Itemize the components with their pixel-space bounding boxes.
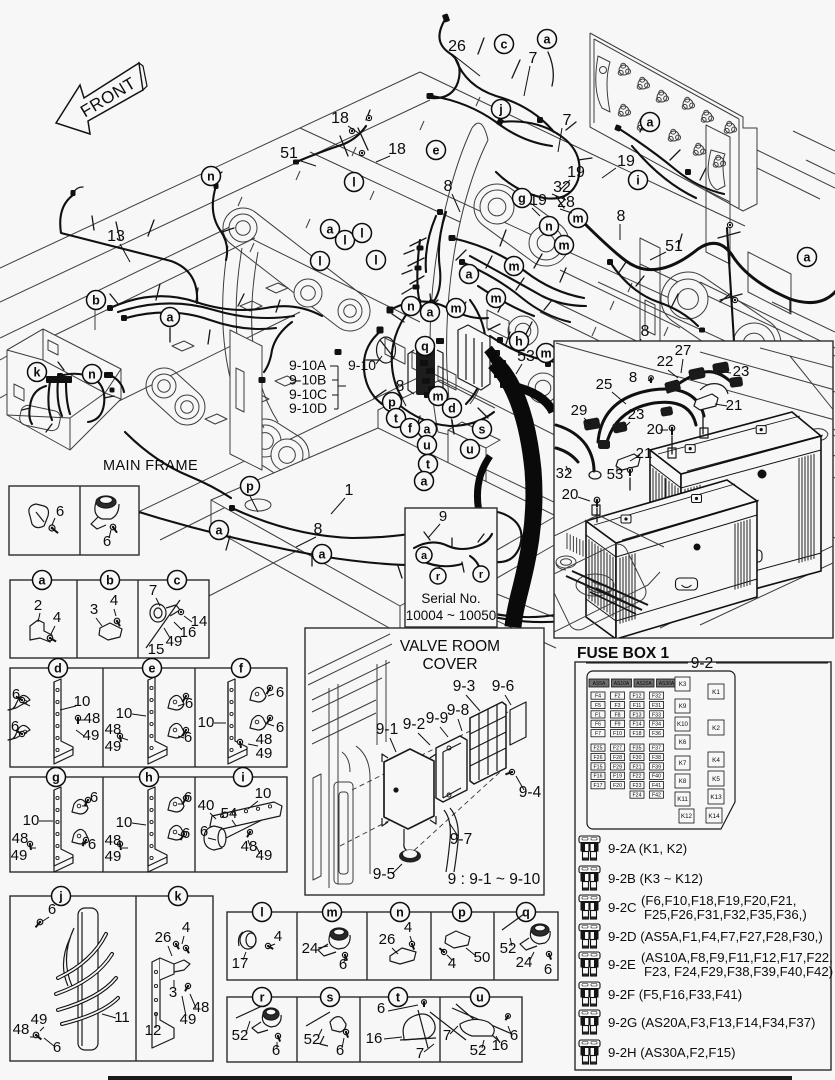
svg-text:K14: K14 — [708, 813, 720, 820]
svg-text:K13: K13 — [710, 794, 722, 801]
svg-text:6: 6 — [12, 686, 20, 703]
svg-text:26: 26 — [379, 931, 396, 948]
svg-text:F22: F22 — [633, 774, 642, 780]
svg-text:9: 9 — [439, 508, 447, 525]
svg-text:10: 10 — [198, 714, 215, 731]
svg-text:F41: F41 — [652, 783, 661, 789]
svg-text:d: d — [54, 662, 62, 676]
svg-text:13: 13 — [107, 228, 125, 245]
svg-text:10: 10 — [116, 705, 133, 722]
svg-text:52: 52 — [470, 1042, 487, 1059]
svg-text:F7: F7 — [595, 731, 601, 737]
svg-text:20: 20 — [562, 486, 579, 503]
svg-text:51: 51 — [665, 238, 683, 255]
svg-text:3: 3 — [90, 601, 98, 618]
svg-text:F15: F15 — [594, 764, 603, 770]
svg-text:49: 49 — [31, 1011, 48, 1028]
svg-text:K8: K8 — [679, 778, 687, 785]
svg-text:19: 19 — [617, 153, 635, 170]
svg-text:a: a — [167, 311, 175, 325]
svg-text:F17: F17 — [594, 783, 603, 789]
svg-text:c: c — [501, 38, 508, 52]
svg-text:6: 6 — [339, 956, 347, 973]
svg-text:F26: F26 — [594, 755, 603, 761]
svg-text:6: 6 — [184, 729, 192, 746]
svg-text:l: l — [318, 255, 321, 269]
svg-text:23: 23 — [733, 363, 750, 380]
svg-text:e: e — [433, 144, 440, 158]
svg-text:F8: F8 — [614, 712, 620, 718]
svg-text:K5: K5 — [712, 776, 720, 783]
svg-text:9-6: 9-6 — [492, 678, 514, 695]
svg-text:9-2D (AS5A,F1,F4,F7,F27,F28,F3: 9-2D (AS5A,F1,F4,F7,F27,F28,F30,) — [608, 929, 823, 944]
svg-text:F14: F14 — [633, 722, 642, 728]
svg-text:12: 12 — [145, 1022, 162, 1039]
svg-text:6: 6 — [276, 719, 284, 736]
svg-text:9-9: 9-9 — [426, 710, 448, 727]
svg-text:F35: F35 — [633, 745, 642, 751]
svg-text:m: m — [572, 212, 583, 226]
svg-text:6: 6 — [510, 1027, 518, 1044]
svg-text:9-2: 9-2 — [691, 655, 713, 672]
svg-text:6: 6 — [11, 718, 19, 735]
svg-text:e: e — [149, 662, 156, 676]
svg-text:F29: F29 — [613, 764, 622, 770]
svg-text:AS20A: AS20A — [636, 681, 652, 687]
svg-text:27: 27 — [675, 342, 692, 359]
svg-text:VALVE ROOM: VALVE ROOM — [400, 638, 500, 655]
svg-text:54: 54 — [221, 805, 238, 822]
svg-text:8: 8 — [444, 178, 453, 195]
svg-text:48: 48 — [105, 832, 122, 849]
svg-text:7: 7 — [563, 112, 572, 129]
svg-text:l: l — [360, 227, 363, 241]
svg-text:g: g — [518, 192, 526, 206]
svg-text:F3: F3 — [614, 703, 620, 709]
svg-text:48: 48 — [13, 1021, 30, 1038]
svg-text:7: 7 — [443, 1027, 451, 1044]
svg-text:d: d — [448, 402, 456, 416]
svg-text:F36: F36 — [652, 731, 661, 737]
svg-text:F33: F33 — [652, 712, 661, 718]
svg-text:11: 11 — [114, 1009, 130, 1026]
svg-text:(F6,F10,F18,F19,F20,F21,: (F6,F10,F18,F19,F20,F21, — [641, 893, 796, 908]
svg-text:q: q — [522, 906, 530, 920]
svg-text:s: s — [479, 423, 486, 437]
svg-text:50: 50 — [474, 949, 491, 966]
svg-text:8: 8 — [396, 378, 405, 395]
svg-text:F19: F19 — [613, 774, 622, 780]
svg-text:53: 53 — [607, 466, 624, 483]
svg-text:48: 48 — [84, 710, 101, 727]
svg-text:F37: F37 — [652, 745, 661, 751]
svg-text:9-3: 9-3 — [453, 678, 475, 695]
svg-text:n: n — [207, 170, 215, 184]
svg-text:3: 3 — [169, 984, 177, 1001]
svg-text:n: n — [88, 368, 96, 382]
svg-text:m: m — [490, 292, 501, 306]
svg-text:6: 6 — [184, 789, 192, 806]
svg-text:i: i — [636, 174, 639, 188]
svg-text:51: 51 — [280, 145, 298, 162]
svg-text:9-10: 9-10 — [348, 357, 376, 373]
svg-text:9-2: 9-2 — [403, 716, 425, 733]
svg-text:9-2C: 9-2C — [608, 900, 637, 915]
svg-text:a: a — [319, 548, 327, 562]
svg-text:6: 6 — [88, 836, 96, 853]
svg-text:6: 6 — [272, 1042, 280, 1059]
svg-text:m: m — [450, 302, 461, 316]
svg-text:F12: F12 — [633, 693, 642, 699]
svg-text:49: 49 — [83, 727, 100, 744]
svg-text:6: 6 — [276, 684, 284, 701]
svg-text:s: s — [327, 991, 334, 1005]
svg-text:p: p — [246, 480, 254, 494]
svg-text:52: 52 — [304, 1031, 321, 1048]
svg-text:r: r — [260, 991, 265, 1005]
svg-text:F34: F34 — [652, 722, 661, 728]
svg-text:6: 6 — [90, 789, 98, 806]
svg-text:6: 6 — [53, 1039, 61, 1056]
svg-text:h: h — [145, 771, 153, 785]
svg-text:Serial No.: Serial No. — [421, 591, 480, 606]
svg-text:48: 48 — [12, 830, 29, 847]
svg-text:8: 8 — [629, 369, 637, 386]
svg-text:a: a — [216, 524, 224, 538]
svg-text:1: 1 — [345, 482, 354, 499]
svg-text:FUSE BOX 1: FUSE BOX 1 — [577, 645, 670, 662]
svg-text:b: b — [106, 574, 114, 588]
svg-text:4: 4 — [182, 919, 190, 936]
svg-text:6: 6 — [182, 825, 190, 842]
svg-text:K10: K10 — [677, 721, 689, 728]
svg-text:h: h — [515, 335, 523, 349]
svg-text:7: 7 — [149, 582, 157, 599]
svg-text:6: 6 — [544, 961, 552, 978]
svg-text:p: p — [388, 396, 396, 410]
svg-text:r: r — [436, 571, 441, 583]
svg-text:9-2A (K1, K2): 9-2A (K1, K2) — [608, 841, 687, 856]
svg-text:K1: K1 — [712, 689, 720, 696]
svg-text:49: 49 — [105, 848, 122, 865]
svg-text:9-2H (AS30A,F2,F15): 9-2H (AS30A,F2,F15) — [608, 1045, 736, 1060]
svg-text:u: u — [476, 991, 484, 1005]
svg-text:22: 22 — [657, 353, 674, 370]
svg-text:(AS10A,F8,F9,F11,F12,F17,F22,: (AS10A,F8,F9,F11,F12,F17,F22, — [641, 950, 833, 965]
svg-text:F11: F11 — [633, 703, 642, 709]
svg-text:9-7: 9-7 — [450, 831, 472, 848]
svg-text:k: k — [175, 890, 182, 904]
svg-text:F4: F4 — [595, 693, 601, 699]
svg-text:k: k — [34, 366, 41, 380]
svg-text:18: 18 — [331, 110, 349, 127]
svg-text:21: 21 — [726, 397, 743, 414]
svg-text:K9: K9 — [679, 703, 687, 710]
svg-text:F39: F39 — [652, 764, 661, 770]
svg-text:MAIN FRAME: MAIN FRAME — [103, 458, 198, 474]
svg-text:m: m — [558, 239, 569, 253]
svg-text:9-2G (AS20A,F3,F13,F14,F34,F37: 9-2G (AS20A,F3,F13,F14,F34,F37) — [608, 1015, 815, 1030]
svg-text:K2: K2 — [712, 725, 720, 732]
svg-text:49: 49 — [256, 745, 273, 762]
svg-text:49: 49 — [105, 738, 122, 755]
svg-text:a: a — [427, 306, 435, 320]
svg-text:COVER: COVER — [422, 656, 477, 673]
svg-text:2: 2 — [34, 597, 42, 614]
svg-text:a: a — [647, 116, 655, 130]
svg-text:a: a — [421, 475, 429, 489]
svg-text:8: 8 — [617, 208, 626, 225]
svg-text:a: a — [544, 33, 552, 47]
svg-text:u: u — [423, 439, 431, 453]
svg-text:10: 10 — [23, 812, 40, 829]
svg-text:6: 6 — [56, 503, 64, 520]
svg-text:l: l — [352, 176, 355, 190]
svg-text:AS5A: AS5A — [593, 681, 606, 687]
svg-text:n: n — [407, 300, 415, 314]
svg-text:F23: F23 — [633, 783, 642, 789]
svg-text:F25: F25 — [594, 745, 603, 751]
svg-text:K7: K7 — [679, 760, 687, 767]
svg-text:j: j — [58, 890, 62, 904]
svg-text:53: 53 — [517, 348, 535, 365]
svg-text:25: 25 — [596, 376, 613, 393]
svg-text:m: m — [508, 260, 519, 274]
svg-text:17: 17 — [232, 955, 249, 972]
svg-text:49: 49 — [180, 1011, 197, 1028]
svg-text:p: p — [458, 906, 466, 920]
svg-text:m: m — [432, 390, 443, 404]
svg-text:16: 16 — [366, 1030, 383, 1047]
svg-text:a: a — [421, 550, 428, 562]
svg-text:F27: F27 — [613, 745, 622, 751]
svg-text:K6: K6 — [679, 739, 687, 746]
svg-text:K4: K4 — [712, 757, 720, 764]
svg-text:F31: F31 — [652, 703, 661, 709]
svg-text:F38: F38 — [652, 755, 661, 761]
svg-text:m: m — [326, 906, 337, 920]
svg-text:49: 49 — [11, 847, 28, 864]
svg-text:24: 24 — [516, 954, 533, 971]
svg-text:F32: F32 — [652, 693, 661, 699]
svg-text:9-2E: 9-2E — [608, 957, 636, 972]
svg-text:g: g — [52, 771, 60, 785]
svg-text:15: 15 — [148, 641, 165, 658]
svg-text:j: j — [498, 103, 502, 117]
svg-text:8: 8 — [641, 323, 650, 340]
svg-text:6: 6 — [185, 695, 193, 712]
svg-text:F13: F13 — [633, 712, 642, 718]
svg-text:F40: F40 — [652, 774, 661, 780]
svg-text:18: 18 — [388, 141, 406, 158]
svg-text:16: 16 — [492, 1037, 509, 1054]
svg-text:26: 26 — [155, 929, 172, 946]
svg-text:9-5: 9-5 — [373, 866, 395, 883]
svg-text:10004 ~ 10050: 10004 ~ 10050 — [406, 608, 496, 623]
svg-text:F30: F30 — [633, 755, 642, 761]
svg-text:10: 10 — [116, 814, 133, 831]
svg-text:F42: F42 — [652, 792, 661, 798]
svg-text:a: a — [424, 423, 432, 437]
svg-text:9-2F (F5,F16,F33,F41): 9-2F (F5,F16,F33,F41) — [608, 987, 742, 1002]
svg-text:F2: F2 — [614, 693, 620, 699]
svg-text:AS30A: AS30A — [659, 681, 675, 687]
svg-text:10: 10 — [255, 785, 272, 802]
svg-text:F28: F28 — [613, 755, 622, 761]
svg-text:K3: K3 — [679, 681, 687, 688]
svg-text:4: 4 — [274, 928, 282, 945]
svg-text:AS10A: AS10A — [614, 681, 630, 687]
svg-text:19: 19 — [529, 192, 547, 209]
svg-text:F1: F1 — [595, 712, 601, 718]
svg-text:6: 6 — [48, 901, 56, 918]
svg-text:l: l — [260, 906, 263, 920]
svg-text:48: 48 — [105, 721, 122, 738]
svg-text:F6: F6 — [595, 722, 601, 728]
svg-text:l: l — [343, 234, 346, 248]
svg-text:b: b — [92, 294, 100, 308]
svg-text:8: 8 — [314, 521, 323, 538]
svg-text:F5: F5 — [595, 703, 601, 709]
svg-text:4: 4 — [110, 592, 118, 609]
svg-text:24: 24 — [302, 940, 319, 957]
svg-text:21: 21 — [636, 445, 653, 462]
svg-text:i: i — [241, 771, 244, 785]
svg-text:26: 26 — [448, 38, 466, 55]
svg-text:m: m — [540, 347, 551, 361]
svg-text:F9: F9 — [614, 722, 620, 728]
svg-text:F20: F20 — [613, 783, 622, 789]
svg-text:52: 52 — [500, 940, 517, 957]
svg-text:K12: K12 — [681, 813, 693, 820]
svg-text:F10: F10 — [613, 731, 622, 737]
svg-text:9 : 9-1 ~ 9-10: 9 : 9-1 ~ 9-10 — [448, 871, 541, 888]
svg-text:F24: F24 — [633, 792, 642, 798]
svg-text:40: 40 — [198, 797, 215, 814]
svg-text:c: c — [174, 574, 181, 588]
svg-text:a: a — [39, 574, 47, 588]
svg-text:n: n — [396, 906, 404, 920]
svg-text:29: 29 — [571, 402, 588, 419]
svg-text:28: 28 — [557, 194, 575, 211]
svg-text:9-8: 9-8 — [447, 702, 469, 719]
svg-text:a: a — [466, 268, 474, 282]
svg-text:r: r — [479, 569, 484, 581]
svg-text:F16: F16 — [594, 774, 603, 780]
svg-text:l: l — [374, 254, 377, 268]
svg-text:F21: F21 — [633, 764, 642, 770]
svg-text:6: 6 — [377, 1000, 385, 1017]
svg-text:4: 4 — [404, 919, 412, 936]
svg-text:a: a — [327, 223, 335, 237]
svg-text:u: u — [466, 443, 474, 457]
svg-text:K11: K11 — [677, 796, 688, 803]
svg-text:q: q — [421, 340, 429, 354]
svg-text:9-2B (K3 ~ K12): 9-2B (K3 ~ K12) — [608, 871, 703, 886]
svg-text:9-1: 9-1 — [376, 721, 398, 738]
svg-text:7: 7 — [416, 1045, 424, 1062]
svg-text:F23, F24,F29,F38,F39,F40,F42): F23, F24,F29,F38,F39,F40,F42) — [644, 964, 833, 979]
svg-text:a: a — [804, 251, 812, 265]
svg-text:6: 6 — [200, 823, 208, 840]
svg-text:23: 23 — [628, 406, 645, 423]
svg-text:n: n — [545, 220, 553, 234]
svg-text:10: 10 — [74, 693, 91, 710]
svg-text:F18: F18 — [633, 731, 642, 737]
svg-text:4: 4 — [53, 609, 61, 626]
svg-text:52: 52 — [232, 1027, 249, 1044]
svg-text:7: 7 — [529, 50, 538, 67]
svg-text:9-10D: 9-10D — [289, 400, 327, 416]
svg-text:F25,F26,F31,F32,F35,F36,): F25,F26,F31,F32,F35,F36,) — [644, 907, 807, 922]
